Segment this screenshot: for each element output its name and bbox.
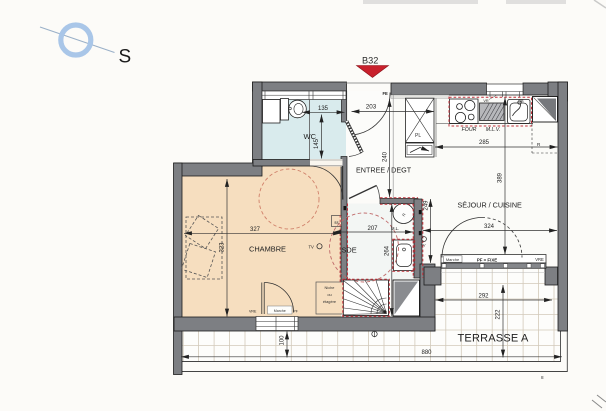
svg-text:8: 8 xyxy=(541,375,544,380)
svg-text:PF = FIXE: PF = FIXE xyxy=(477,257,497,262)
svg-text:240: 240 xyxy=(382,151,388,162)
svg-text:Marche: Marche xyxy=(446,257,460,262)
svg-text:PF: PF xyxy=(294,310,298,314)
svg-text:324: 324 xyxy=(484,224,495,230)
svg-text:207: 207 xyxy=(367,226,378,232)
svg-text:135: 135 xyxy=(318,106,329,112)
svg-text:ENTREE / DEGT: ENTREE / DEGT xyxy=(356,166,412,175)
svg-text:étagère: étagère xyxy=(323,299,336,304)
svg-text:ou: ou xyxy=(327,292,331,297)
svg-text:M.L.: M.L. xyxy=(391,226,399,231)
svg-text:GB: GB xyxy=(518,99,524,103)
svg-text:249: 249 xyxy=(423,200,429,211)
svg-text:327: 327 xyxy=(250,227,261,233)
svg-text:S: S xyxy=(119,47,132,68)
svg-text:SÉJOUR / CUISINE: SÉJOUR / CUISINE xyxy=(458,201,523,210)
svg-text:880: 880 xyxy=(421,350,432,356)
svg-text:100: 100 xyxy=(280,335,286,346)
svg-text:VRE: VRE xyxy=(249,310,257,314)
svg-text:FE: FE xyxy=(383,91,389,96)
svg-text:TV: TV xyxy=(421,244,426,248)
svg-text:TERRASSE A: TERRASSE A xyxy=(458,333,530,345)
svg-text:389: 389 xyxy=(498,172,504,183)
svg-text:264: 264 xyxy=(385,245,391,256)
svg-text:Marche: Marche xyxy=(274,309,286,313)
svg-text:FOUR: FOUR xyxy=(462,127,477,133)
svg-text:TV: TV xyxy=(309,245,315,250)
svg-text:VRE: VRE xyxy=(535,257,544,262)
svg-text:222: 222 xyxy=(496,309,502,320)
svg-text:Niche: Niche xyxy=(325,285,335,290)
svg-text:CHAMBRE: CHAMBRE xyxy=(249,245,286,254)
svg-text:M.L.V.: M.L.V. xyxy=(486,127,501,133)
svg-text:SDE: SDE xyxy=(342,246,357,255)
svg-text:285: 285 xyxy=(479,140,490,146)
svg-text:323: 323 xyxy=(220,242,226,253)
svg-text:VR: VR xyxy=(483,99,489,103)
svg-text:B32: B32 xyxy=(362,56,378,66)
svg-text:WC: WC xyxy=(304,132,317,141)
svg-text:292: 292 xyxy=(478,294,489,300)
svg-text:PL: PL xyxy=(415,133,421,139)
svg-text:203: 203 xyxy=(366,104,377,111)
